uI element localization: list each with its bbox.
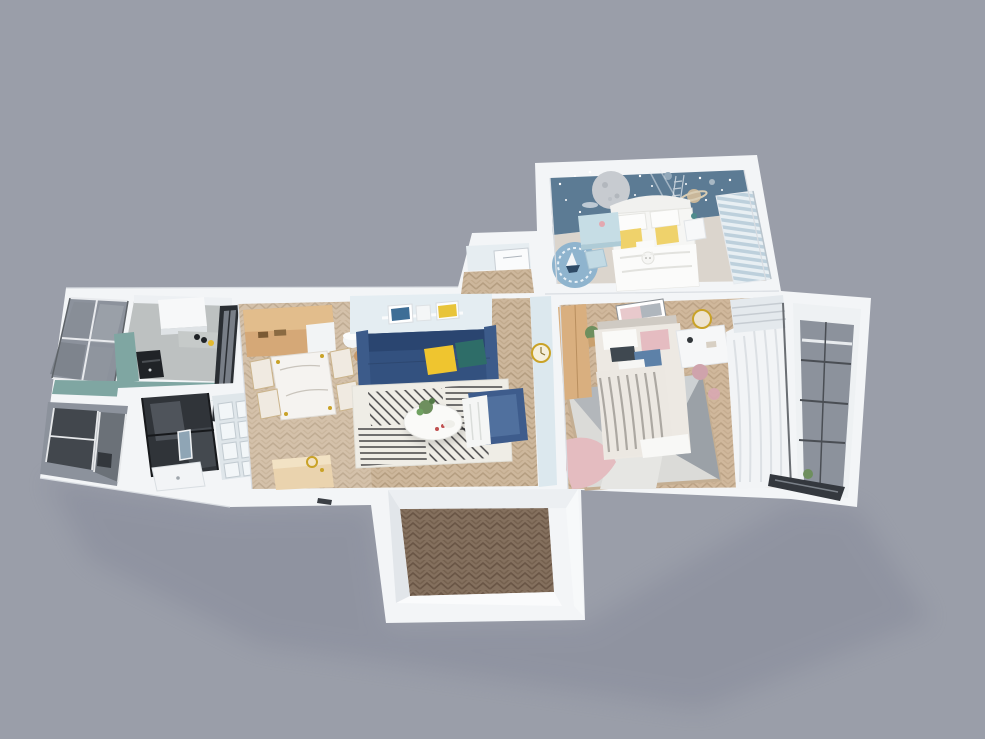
pink-stool <box>692 364 708 380</box>
sheer-curtains <box>726 295 791 489</box>
yellow-jar <box>208 340 214 346</box>
wall-art-blue <box>388 304 413 324</box>
wall-art-yellow <box>436 301 459 320</box>
gold-wall-clock <box>532 344 550 362</box>
kids-bed <box>610 195 699 291</box>
kids-bedroom <box>550 170 771 291</box>
entry-console <box>272 455 334 490</box>
entry-floor <box>400 507 554 596</box>
gold-decor <box>320 468 324 472</box>
gold-round-mirror <box>693 310 711 328</box>
oven <box>136 350 164 379</box>
dining-chair <box>257 389 281 419</box>
white-throw <box>462 395 491 448</box>
pillow-pink <box>640 329 670 352</box>
plush-cat <box>642 251 654 264</box>
bottle <box>194 334 200 340</box>
master-bedroom <box>558 295 791 489</box>
armchair <box>462 388 528 448</box>
dining-chair <box>330 348 354 379</box>
kitchen-upper-cabinet <box>158 297 207 329</box>
balcony-left-bottom <box>40 402 128 486</box>
hall-nook <box>461 243 534 294</box>
pillow-teal <box>455 339 487 368</box>
kids-chair <box>585 249 607 269</box>
dining-chair <box>250 358 274 390</box>
balcony-plant <box>803 469 813 479</box>
pillow-yellow <box>424 345 457 375</box>
mural-planet <box>709 179 715 185</box>
window-handle <box>97 452 112 468</box>
sideboard <box>243 305 336 357</box>
bath-art <box>178 430 192 460</box>
render-canvas <box>0 0 985 739</box>
wall-art-white <box>416 305 431 321</box>
floor-plan-svg <box>0 0 985 739</box>
pink-pouf <box>708 388 720 400</box>
kids-pillow-yellow <box>655 225 679 245</box>
dining-table <box>271 351 336 420</box>
bottle <box>201 337 207 343</box>
